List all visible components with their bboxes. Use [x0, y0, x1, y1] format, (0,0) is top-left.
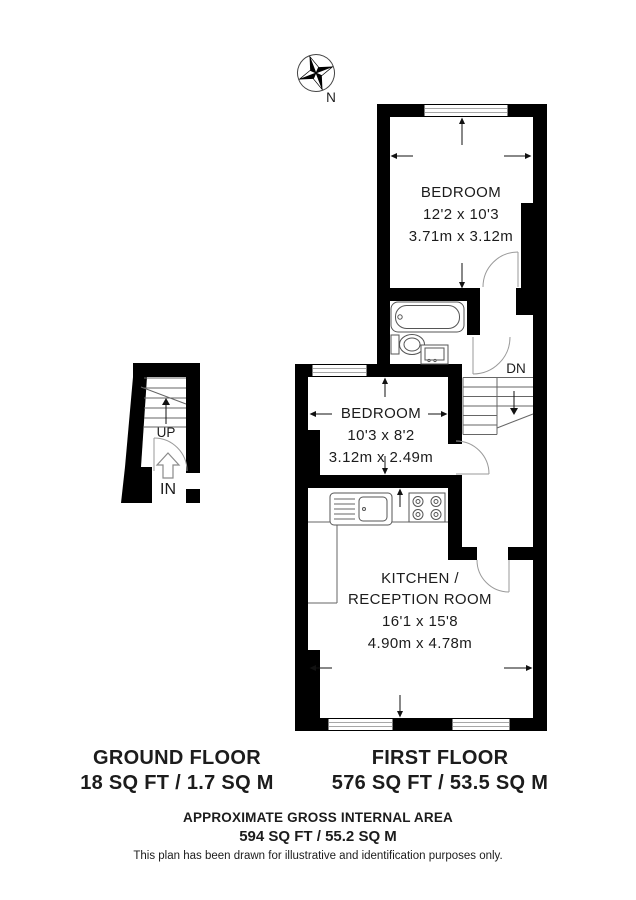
- compass-north-label: N: [326, 90, 336, 105]
- bedroom2-name: BEDROOM: [341, 405, 421, 422]
- summary-area: 594 SQ FT / 55.2 SQ M: [239, 828, 397, 845]
- window-kitchen-bottom-right: [452, 719, 510, 731]
- staircase-up: UP: [141, 378, 186, 440]
- bedroom2-dims-imperial: 10'3 x 8'2: [347, 427, 414, 444]
- doors: [456, 252, 518, 592]
- kitchen-dims-imperial: 16'1 x 15'8: [382, 613, 458, 630]
- entry-arrow-icon: [157, 453, 179, 478]
- door-kitchen: [477, 560, 509, 592]
- window-bedroom2-top: [312, 365, 367, 377]
- hob-icon: [409, 493, 445, 522]
- door-bedroom1: [483, 252, 518, 287]
- summary-title: APPROXIMATE GROSS INTERNAL AREA: [183, 810, 453, 825]
- floorplan-page: N: [0, 0, 636, 900]
- ground-floor-plan: UP IN: [121, 363, 200, 503]
- window-bedroom1-top: [424, 105, 508, 117]
- bedroom1-dimension-arrows: [391, 118, 532, 289]
- ground-floor-area: 18 SQ FT / 1.7 SQ M: [80, 772, 274, 794]
- entrance-marker: IN: [157, 453, 179, 498]
- kitchen-name-line1: KITCHEN /: [381, 570, 459, 587]
- footer: GROUND FLOOR 18 SQ FT / 1.7 SQ M FIRST F…: [80, 747, 548, 862]
- bedroom1-dims-metric: 3.71m x 3.12m: [409, 228, 513, 245]
- first-floor-area: 576 SQ FT / 53.5 SQ M: [332, 772, 548, 794]
- first-floor-plan: DN: [295, 104, 547, 731]
- stairs-down-label: DN: [506, 361, 526, 376]
- bathroom-sink-icon: [421, 345, 448, 364]
- toilet-icon: [391, 335, 425, 355]
- bedroom1-dims-imperial: 12'2 x 10'3: [423, 206, 499, 223]
- kitchen-name-line2: RECEPTION ROOM: [348, 591, 492, 608]
- compass-rose-icon: N: [292, 49, 340, 105]
- kitchen-sink-icon: [330, 493, 392, 525]
- floorplan-drawing: N: [0, 0, 636, 900]
- bedroom2-dims-metric: 3.12m x 2.49m: [329, 449, 433, 466]
- stairs-up-arrow-icon: [162, 398, 170, 405]
- disclaimer: This plan has been drawn for illustrativ…: [133, 850, 502, 862]
- bedroom1-name: BEDROOM: [421, 184, 501, 201]
- window-kitchen-bottom-left: [328, 719, 393, 731]
- stairs-up-label: UP: [157, 425, 176, 440]
- entrance-label: IN: [160, 481, 176, 498]
- ground-floor-title: GROUND FLOOR: [93, 747, 261, 769]
- bathroom-fixtures: [391, 302, 464, 364]
- door-bedroom2: [456, 441, 489, 474]
- bathtub-icon: [391, 302, 464, 332]
- first-floor-title: FIRST FLOOR: [372, 747, 509, 769]
- stairs-down-arrow-icon: [510, 408, 518, 415]
- kitchen-dims-metric: 4.90m x 4.78m: [368, 635, 472, 652]
- door-bathroom: [473, 337, 510, 374]
